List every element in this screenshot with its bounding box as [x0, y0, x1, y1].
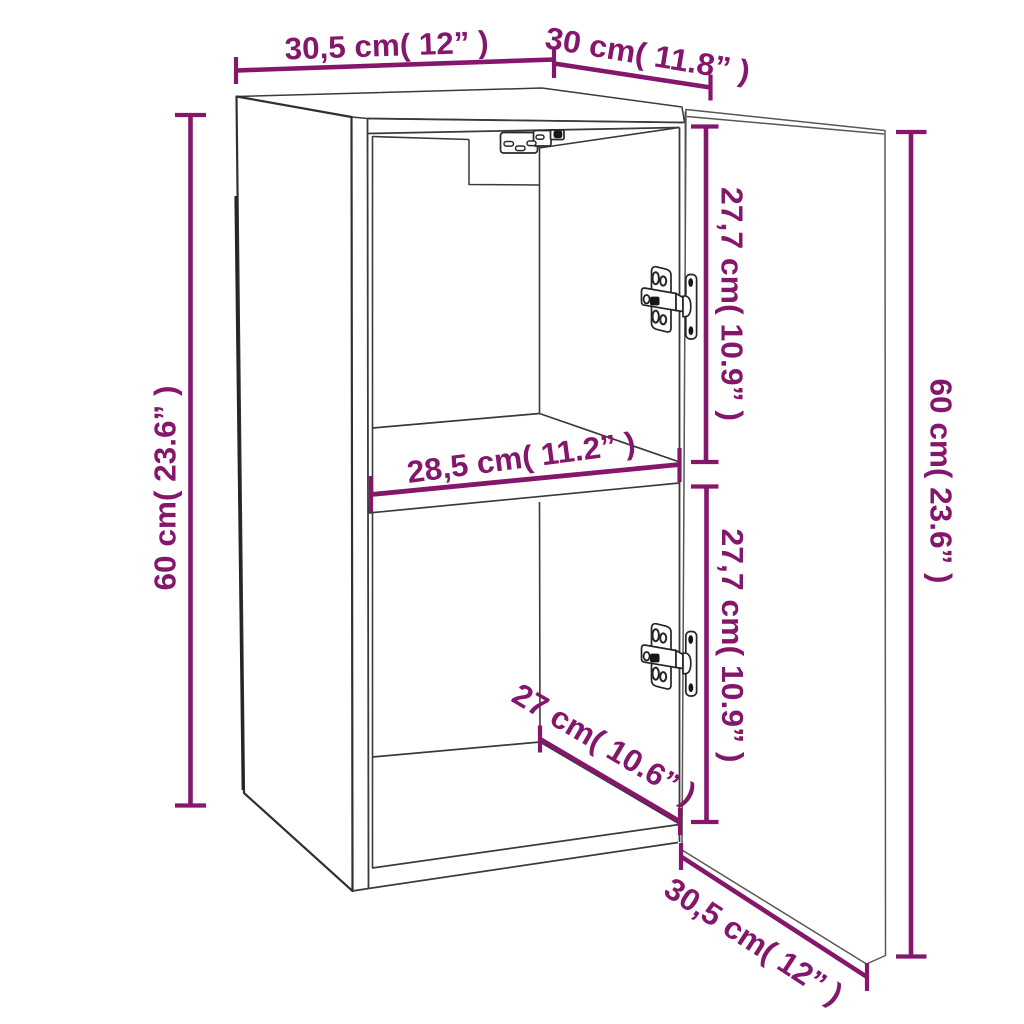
svg-text:27,7 cm( 10.9” ): 27,7 cm( 10.9” )	[715, 529, 750, 763]
svg-text:27,7 cm( 10.9” ): 27,7 cm( 10.9” )	[715, 187, 750, 421]
svg-text:60 cm( 23.6” ): 60 cm( 23.6” )	[148, 386, 183, 591]
svg-text:30,5 cm( 12” ): 30,5 cm( 12” )	[284, 24, 489, 66]
svg-text:60 cm( 23.6” ): 60 cm( 23.6” )	[924, 379, 959, 584]
